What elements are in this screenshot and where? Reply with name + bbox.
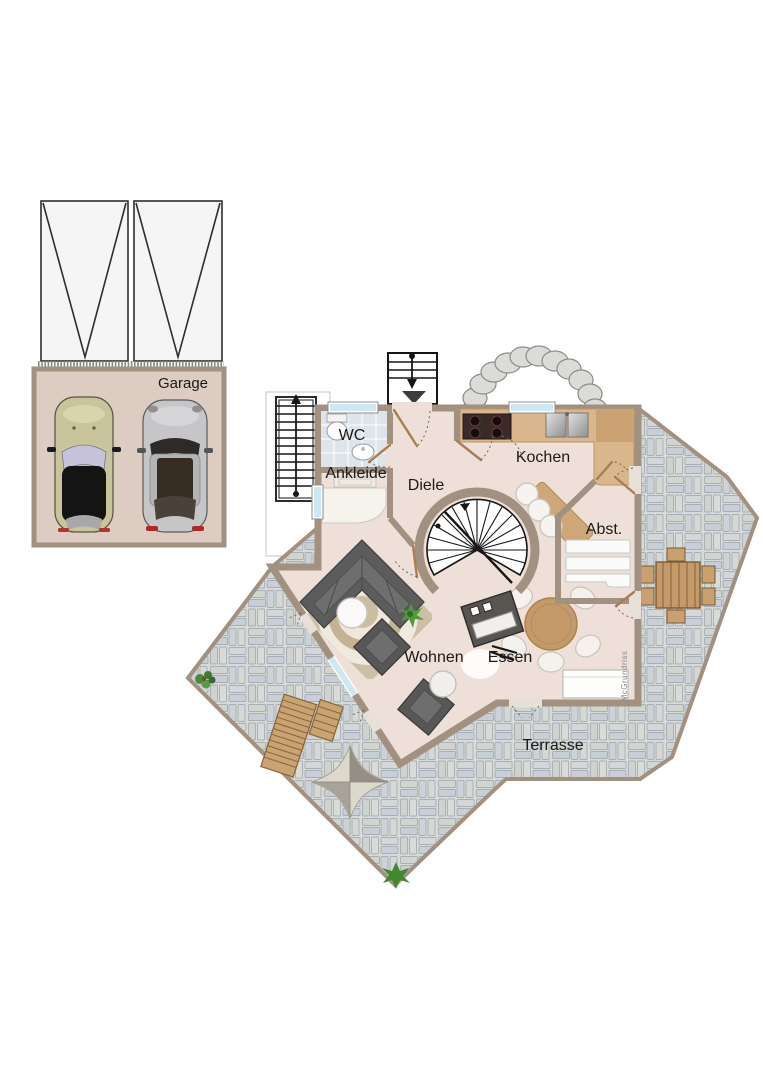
ankleide-label: Ankleide [325, 465, 386, 482]
wc-window [328, 402, 378, 413]
side-table [430, 671, 456, 697]
sideboard [563, 670, 628, 698]
diele-label: Diele [408, 477, 445, 494]
abst-label: Abst. [586, 521, 622, 538]
ankleide-window [312, 485, 323, 519]
entrance-opening [392, 402, 432, 413]
terrasse-label: Terrasse [522, 737, 583, 754]
kitchen-window [509, 402, 555, 413]
car-left [47, 397, 121, 532]
stove [463, 414, 511, 439]
driveway-left [41, 201, 128, 361]
car-right [137, 400, 213, 532]
kochen-label: Kochen [516, 449, 570, 466]
garage-room: Garage [34, 369, 224, 545]
driveway-right [134, 201, 222, 361]
wc-label: WC [339, 427, 366, 444]
toilet-cistern [327, 414, 347, 422]
essen-label: Essen [488, 649, 532, 666]
watermark: McGrundriss [620, 651, 629, 702]
floorplan-drawing: Garage [0, 0, 763, 1080]
coffee-table [337, 598, 367, 628]
floorplan-page: Garage [0, 0, 763, 1080]
wohnen-label: Wohnen [404, 649, 463, 666]
washbasin [352, 444, 374, 460]
garage-label: Garage [158, 375, 208, 392]
abst-shelves [566, 540, 630, 587]
